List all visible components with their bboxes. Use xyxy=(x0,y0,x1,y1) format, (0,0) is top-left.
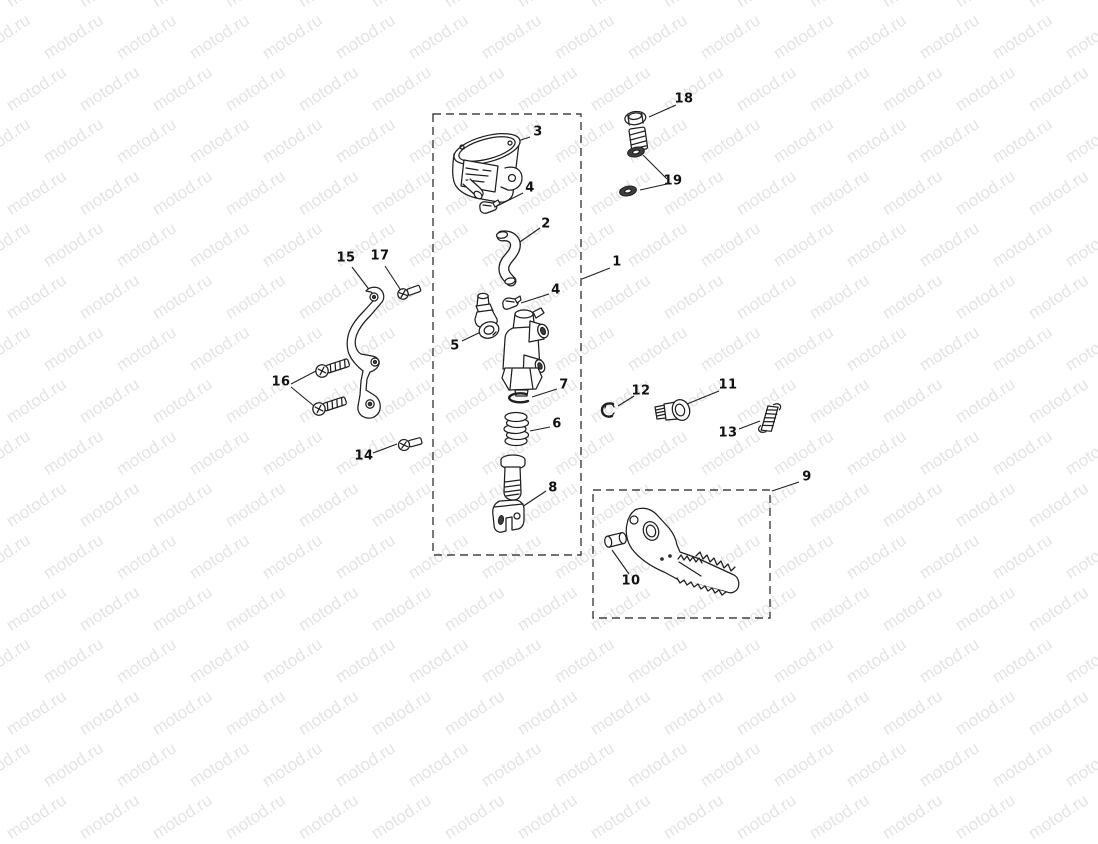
callout-4a: 4 xyxy=(525,181,535,196)
callout-11: 11 xyxy=(718,378,737,393)
callout-6: 6 xyxy=(552,417,562,432)
callout-12: 12 xyxy=(631,384,650,399)
callout-labels: 1 2 3 4 4 5 6 7 8 9 10 11 12 13 14 15 16… xyxy=(0,0,1098,824)
callout-4b: 4 xyxy=(551,283,561,298)
callout-13: 13 xyxy=(718,426,737,441)
callout-16: 16 xyxy=(271,375,290,390)
callout-5: 5 xyxy=(450,339,460,354)
callout-8: 8 xyxy=(548,481,558,496)
callout-10: 10 xyxy=(621,574,640,589)
callout-17: 17 xyxy=(370,249,389,264)
callout-2: 2 xyxy=(541,217,551,232)
callout-3: 3 xyxy=(533,125,543,140)
callout-15: 15 xyxy=(336,251,355,266)
callout-7: 7 xyxy=(559,378,569,393)
callout-1: 1 xyxy=(612,255,622,270)
callout-9: 9 xyxy=(802,470,812,485)
callout-19: 19 xyxy=(663,174,682,189)
callout-18: 18 xyxy=(674,92,693,107)
callout-14: 14 xyxy=(354,449,373,464)
